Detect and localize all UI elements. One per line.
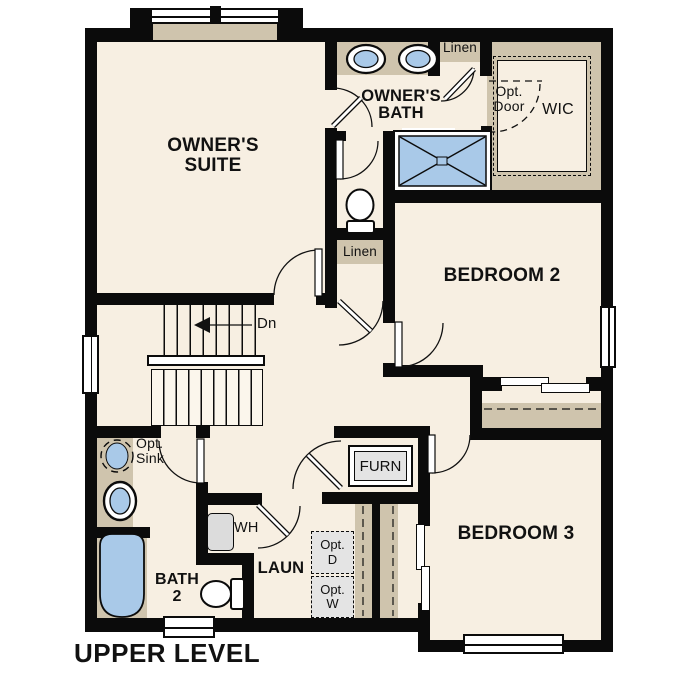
stairs-lower-run — [151, 369, 263, 426]
room-label-laundry: LAUN — [250, 560, 312, 577]
wall-segment — [383, 190, 613, 203]
plan-title: UPPER LEVEL — [74, 640, 334, 667]
wall-segment — [196, 426, 210, 438]
wall-segment — [97, 293, 274, 305]
room-label-bedroom2: BEDROOM 2 — [418, 266, 586, 286]
wall-segment — [428, 40, 440, 76]
laundry-shelf — [355, 504, 372, 618]
room-label-owners-suite: OWNER'S SUITE — [138, 136, 288, 176]
wall-segment — [85, 28, 97, 335]
water-heater-label: WH — [234, 521, 266, 536]
wall-segment — [383, 365, 483, 377]
linen-top-label: Linen — [440, 41, 480, 55]
wall-segment — [482, 377, 502, 391]
bedroom3-closet-bypass-door — [421, 566, 430, 611]
bedroom3-closet-bypass-door — [416, 524, 425, 570]
wall-segment — [418, 504, 430, 526]
stairs-upper-run — [152, 305, 260, 356]
wall-segment — [480, 28, 492, 76]
wall-segment — [208, 493, 262, 505]
wall-segment — [325, 40, 337, 90]
optional-dryer-label: Opt. D — [316, 538, 350, 567]
stairs-handrail — [147, 355, 265, 366]
optional-door-label: Opt. Door — [484, 84, 534, 113]
furnace-label: FURN — [360, 458, 402, 475]
wall-segment — [322, 492, 430, 504]
wall-segment — [383, 305, 395, 323]
room-label-owners-bath: OWNER'S BATH — [342, 88, 460, 123]
optional-sink-label: Opt. Sink — [136, 436, 180, 465]
wall-segment — [97, 527, 150, 538]
owners-bath-vanity-counter — [337, 42, 428, 75]
optional-dryer-box: Opt. D — [311, 531, 354, 574]
wall-segment — [316, 293, 337, 305]
wall-segment — [325, 228, 395, 240]
window-bedroom2 — [600, 306, 616, 368]
bay-window-sill — [152, 22, 278, 42]
bedroom2-closet-bypass-door — [541, 383, 590, 393]
stairs-direction-label: Dn — [257, 316, 289, 332]
water-heater-unit — [207, 513, 234, 551]
window-bath2 — [163, 616, 215, 638]
wall-segment — [196, 553, 254, 565]
room-label-wic: WIC — [536, 102, 580, 119]
wall-segment — [334, 131, 346, 141]
furnace-closet-unit: FURN — [348, 445, 413, 487]
wall-segment — [334, 426, 430, 438]
window-bedroom3 — [463, 634, 564, 654]
floor-plan: FURN Opt. D Opt. W — [0, 0, 687, 687]
bedroom2-closet-shelf — [482, 403, 601, 428]
wall-segment — [85, 618, 430, 632]
room-label-bath2: BATH 2 — [152, 572, 202, 606]
window-left — [82, 335, 99, 394]
wall-segment — [383, 131, 395, 308]
tub-deck — [97, 528, 147, 618]
bath2-vanity-counter — [97, 428, 133, 528]
optional-washer-label: Opt. W — [316, 583, 350, 612]
bedroom3-closet-shelf — [380, 504, 398, 618]
optional-washer-box: Opt. W — [311, 576, 354, 618]
wall-segment — [372, 504, 380, 618]
room-label-bedroom3: BEDROOM 3 — [432, 524, 600, 544]
linen-mid-label: Linen — [337, 245, 383, 259]
wall-segment — [470, 428, 613, 440]
bay-window-post — [210, 6, 221, 24]
shower-entry — [402, 128, 455, 136]
wall-segment — [325, 128, 337, 308]
wall-segment — [196, 482, 208, 555]
